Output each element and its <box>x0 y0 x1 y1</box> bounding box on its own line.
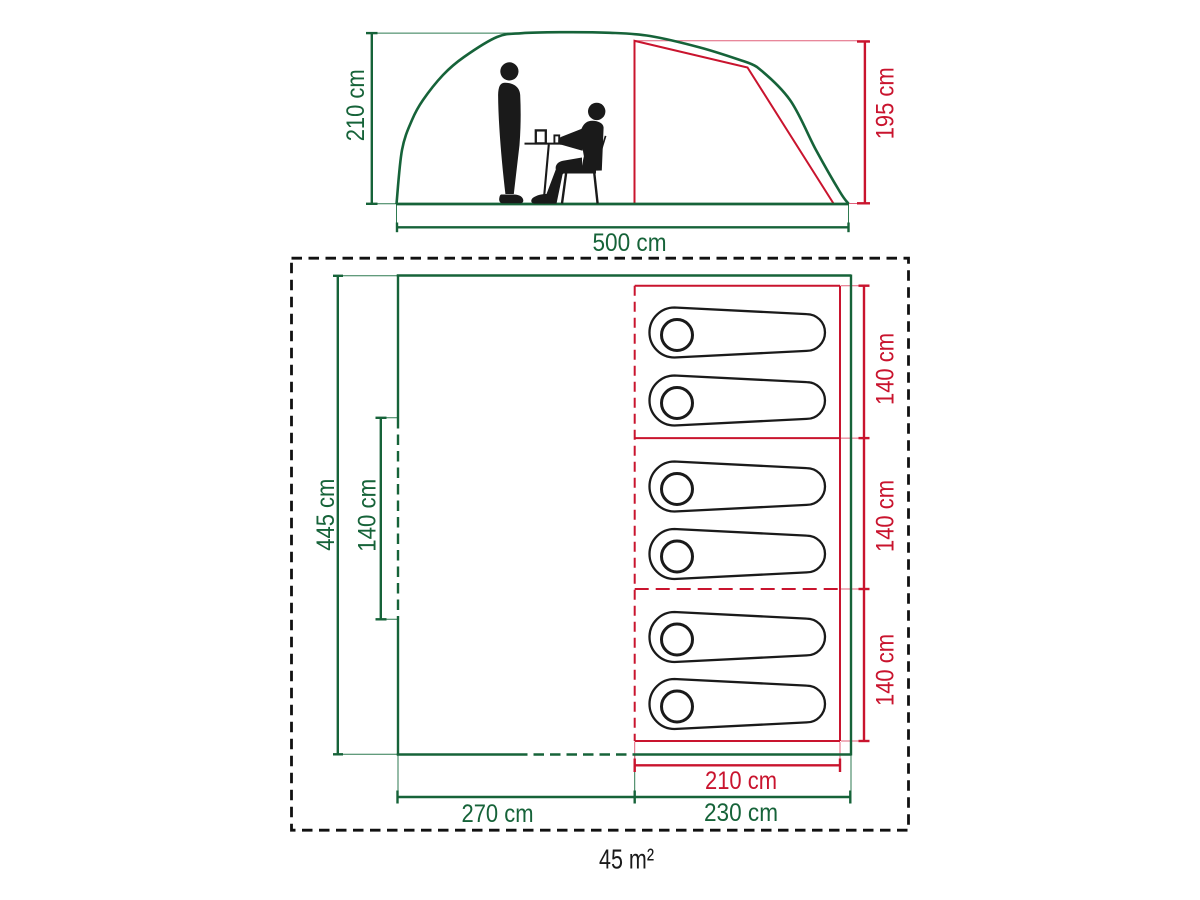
svg-text:270 cm: 270 cm <box>462 800 534 828</box>
svg-text:195 cm: 195 cm <box>872 67 900 139</box>
svg-text:445 cm: 445 cm <box>312 479 340 551</box>
svg-text:140 cm: 140 cm <box>872 634 900 706</box>
svg-text:45 m²: 45 m² <box>599 844 654 875</box>
svg-text:140 cm: 140 cm <box>872 480 900 552</box>
svg-text:140 cm: 140 cm <box>872 333 900 405</box>
svg-text:500 cm: 500 cm <box>593 229 667 257</box>
svg-text:140 cm: 140 cm <box>354 479 382 552</box>
svg-text:210 cm: 210 cm <box>705 767 777 795</box>
svg-text:230 cm: 230 cm <box>704 799 778 827</box>
svg-text:210 cm: 210 cm <box>342 69 370 141</box>
